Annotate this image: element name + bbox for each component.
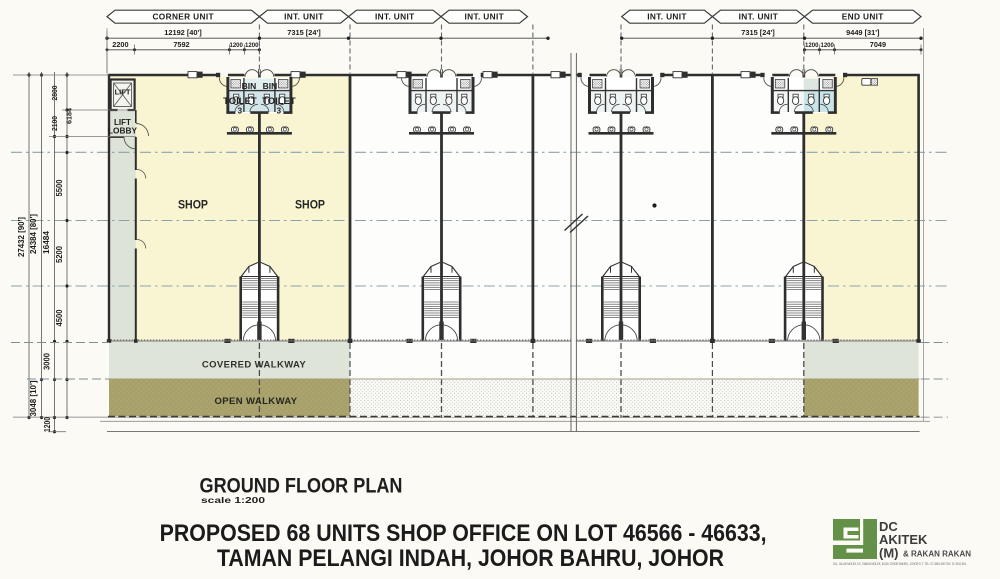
svg-text:3: 3 — [277, 107, 282, 116]
svg-text:TOILET: TOILET — [262, 96, 296, 107]
svg-text:PROPOSED 68 UNITS SHOP OFFICE: PROPOSED 68 UNITS SHOP OFFICE ON LOT 465… — [160, 520, 767, 547]
svg-text:& RAKAN RAKAN: & RAKAN RAKAN — [903, 550, 971, 559]
svg-text:6184: 6184 — [65, 107, 74, 124]
svg-text:2100: 2100 — [50, 116, 59, 131]
svg-text:BIN: BIN — [263, 81, 278, 91]
svg-text:5200: 5200 — [54, 246, 64, 263]
svg-text:CORNER UNIT: CORNER UNIT — [152, 12, 213, 22]
svg-text:7049: 7049 — [870, 40, 886, 49]
svg-text:LIFT: LIFT — [115, 88, 131, 97]
svg-text:COVERED WALKWAY: COVERED WALKWAY — [202, 360, 307, 371]
svg-text:7315 [24']: 7315 [24'] — [741, 28, 775, 37]
svg-text:2200: 2200 — [112, 40, 128, 49]
svg-text:16484: 16484 — [41, 231, 51, 254]
svg-text:INT. UNIT: INT. UNIT — [464, 12, 504, 22]
svg-text:TOILET: TOILET — [223, 96, 257, 107]
svg-text:1200: 1200 — [245, 42, 259, 49]
svg-text:INT. UNIT: INT. UNIT — [739, 12, 779, 22]
svg-text:3000: 3000 — [42, 353, 52, 370]
svg-text:3048 [10']: 3048 [10'] — [28, 380, 38, 416]
svg-text:SHOP: SHOP — [295, 198, 325, 212]
svg-text:(M): (M) — [879, 546, 899, 561]
svg-text:END UNIT: END UNIT — [842, 12, 884, 22]
svg-text:1200: 1200 — [820, 42, 834, 49]
svg-text:INT. UNIT: INT. UNIT — [647, 12, 687, 22]
svg-text:24384 [80']: 24384 [80'] — [28, 214, 38, 254]
svg-text:1200: 1200 — [42, 417, 52, 432]
svg-text:3: 3 — [238, 107, 243, 116]
svg-text:scale 1:200: scale 1:200 — [201, 495, 265, 505]
svg-text:1200: 1200 — [229, 42, 243, 49]
svg-text:OPEN WALKWAY: OPEN WALKWAY — [214, 396, 297, 407]
svg-text:2800: 2800 — [50, 86, 59, 101]
svg-text:9449 [31']: 9449 [31'] — [846, 28, 880, 37]
svg-text:TAMAN PELANGI INDAH, JOHOR BAH: TAMAN PELANGI INDAH, JOHOR BAHRU, JOHOR — [217, 545, 724, 572]
svg-text:1200: 1200 — [805, 42, 819, 49]
svg-text:INT. UNIT: INT. UNIT — [375, 12, 415, 22]
svg-text:181, JALAN MOLEK 1/9, TAMAN MO: 181, JALAN MOLEK 1/9, TAMAN MOLEK, 81100… — [833, 562, 966, 566]
svg-text:27432 [90']: 27432 [90'] — [16, 217, 26, 257]
svg-text:LOBBY: LOBBY — [108, 127, 138, 136]
svg-text:7315 [24']: 7315 [24'] — [287, 28, 321, 37]
svg-text:BIN: BIN — [242, 81, 257, 91]
svg-text:5500: 5500 — [54, 179, 64, 196]
svg-text:7592: 7592 — [173, 40, 189, 49]
svg-text:INT. UNIT: INT. UNIT — [284, 12, 324, 22]
svg-text:4500: 4500 — [54, 309, 64, 326]
svg-text:12192 [40']: 12192 [40'] — [164, 28, 202, 37]
svg-text:SHOP: SHOP — [178, 198, 208, 212]
